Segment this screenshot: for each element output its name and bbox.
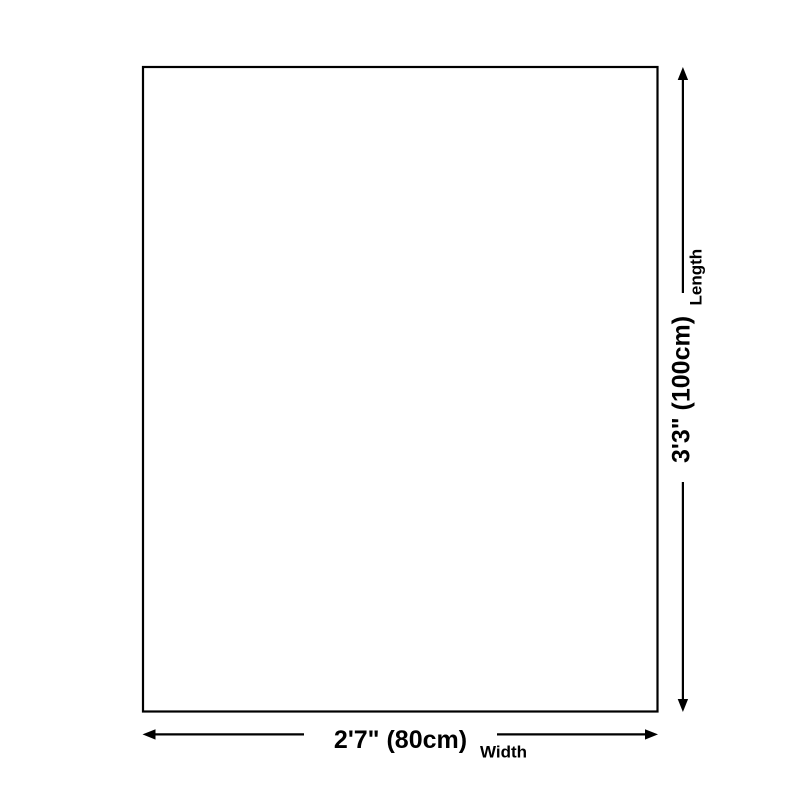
svg-text:3'3" (100cm): 3'3" (100cm) [667, 316, 695, 463]
svg-text:2'7" (80cm): 2'7" (80cm) [334, 726, 467, 754]
svg-text:Length: Length [687, 249, 706, 306]
svg-text:Width: Width [480, 743, 527, 762]
